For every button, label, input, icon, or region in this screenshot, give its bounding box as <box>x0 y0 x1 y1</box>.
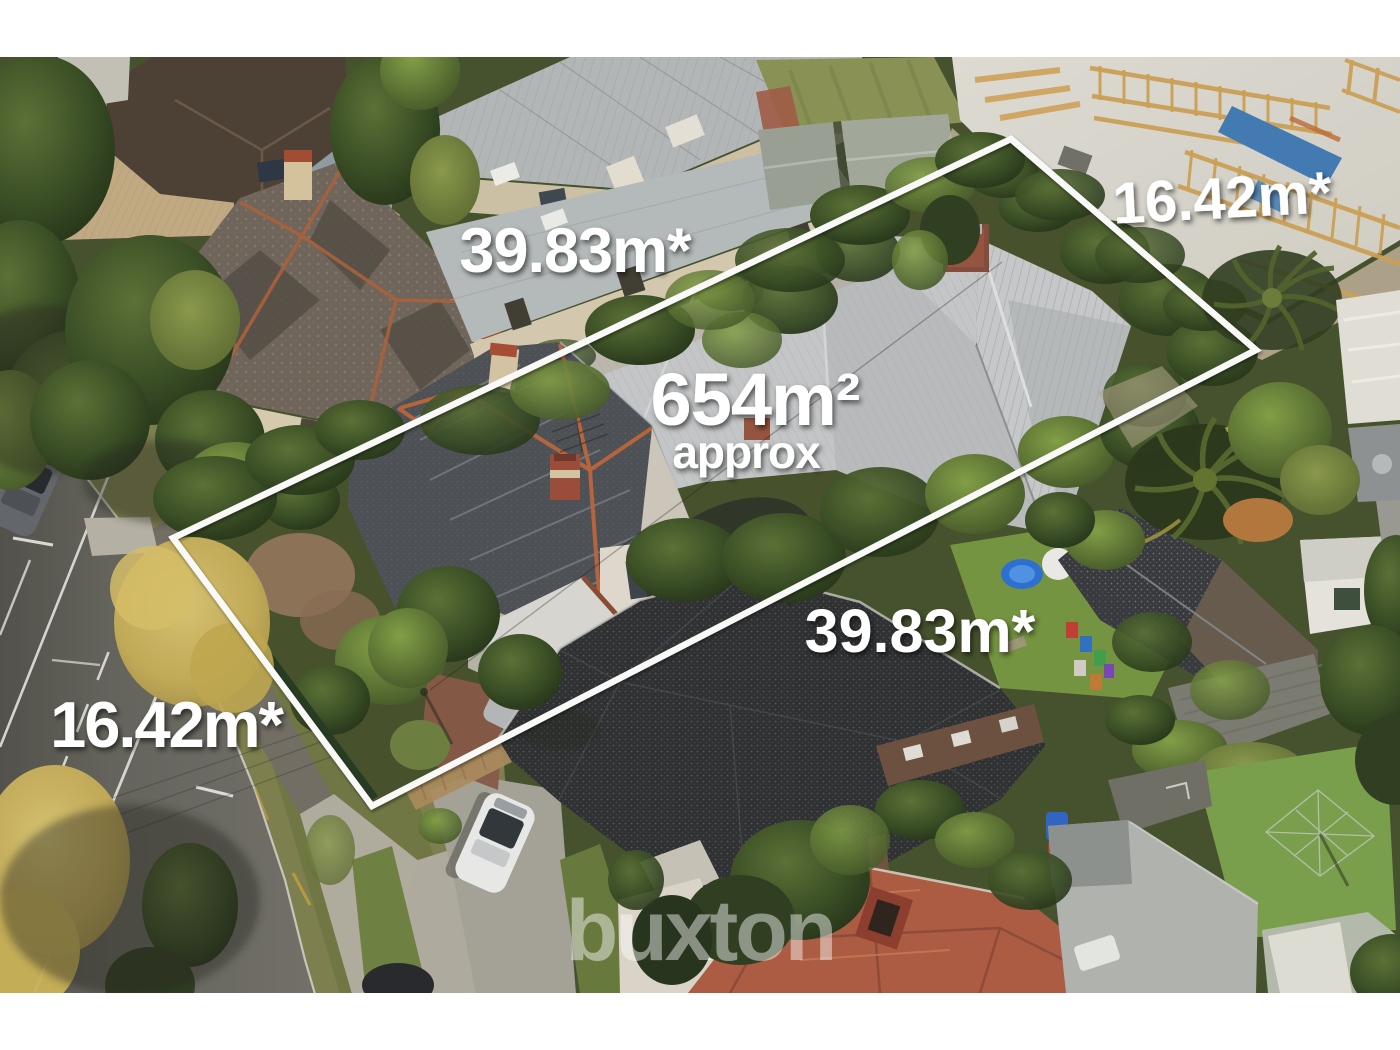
svg-text:16.42m*: 16.42m* <box>50 688 284 761</box>
svg-text:16.42m*: 16.42m* <box>1111 160 1334 236</box>
svg-text:39.83m*: 39.83m* <box>459 216 692 286</box>
svg-text:approx: approx <box>672 426 821 478</box>
svg-text:39.83m*: 39.83m* <box>805 597 1036 665</box>
svg-text:buxton: buxton <box>566 883 835 979</box>
